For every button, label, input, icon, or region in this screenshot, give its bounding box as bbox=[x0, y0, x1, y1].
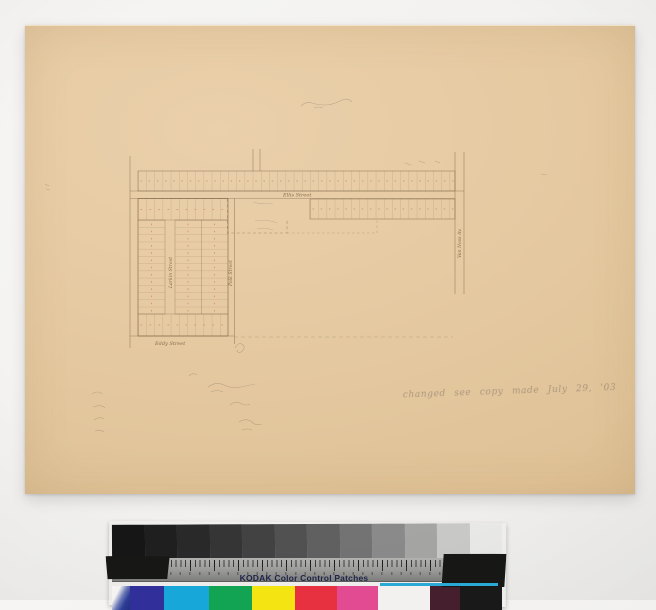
gray-patch-6 bbox=[307, 524, 340, 560]
gray-patch-3 bbox=[209, 524, 242, 560]
street-label-polk: Polk Street bbox=[228, 260, 234, 287]
gray-patch-1 bbox=[144, 525, 177, 561]
pencil-scribbles bbox=[45, 99, 547, 432]
street-label-eddy: Eddy Street bbox=[154, 341, 186, 347]
color-patch-black bbox=[460, 586, 502, 610]
gray-patch-2 bbox=[177, 524, 210, 560]
color-patch-white bbox=[378, 586, 430, 610]
gray-patch-0 bbox=[112, 525, 145, 561]
gray-patch-7 bbox=[339, 524, 372, 560]
gray-patch-4 bbox=[242, 524, 275, 560]
color-patch-red bbox=[295, 586, 337, 610]
gray-patch-5 bbox=[274, 524, 307, 560]
street-label-larkin: Larkin Street bbox=[168, 257, 174, 289]
gray-patch-9 bbox=[404, 523, 437, 559]
color-patch-magenta bbox=[337, 586, 378, 610]
color-patch-cyan bbox=[164, 586, 209, 610]
street-label-ellis: Ellis Street bbox=[282, 193, 312, 199]
photo-stage: Ellis Street Eddy Street Larkin Street P… bbox=[0, 0, 656, 600]
cyan-stripe bbox=[380, 583, 498, 586]
street-label-van-ness: Van Ness Av. bbox=[457, 228, 463, 258]
color-patch-maroon bbox=[430, 586, 460, 610]
screenshot-root: { "photo": { "background": "#f2f1ef", "p… bbox=[0, 0, 656, 600]
color-patch-yellow bbox=[252, 586, 295, 610]
map-sheet: Ellis Street Eddy Street Larkin Street P… bbox=[25, 25, 635, 494]
color-patch-row bbox=[112, 586, 502, 610]
patch-left-sliver bbox=[112, 586, 130, 610]
kodak-calibration-strip: KODAK Color Control Patches bbox=[112, 524, 502, 608]
plat-drawing: Ellis Street Eddy Street Larkin Street P… bbox=[25, 26, 635, 494]
gray-patch-8 bbox=[372, 524, 405, 560]
color-patch-blue bbox=[130, 586, 164, 610]
ruler-major-ticks bbox=[118, 560, 496, 571]
grayscale-row bbox=[112, 523, 502, 561]
color-patch-green bbox=[209, 586, 252, 610]
